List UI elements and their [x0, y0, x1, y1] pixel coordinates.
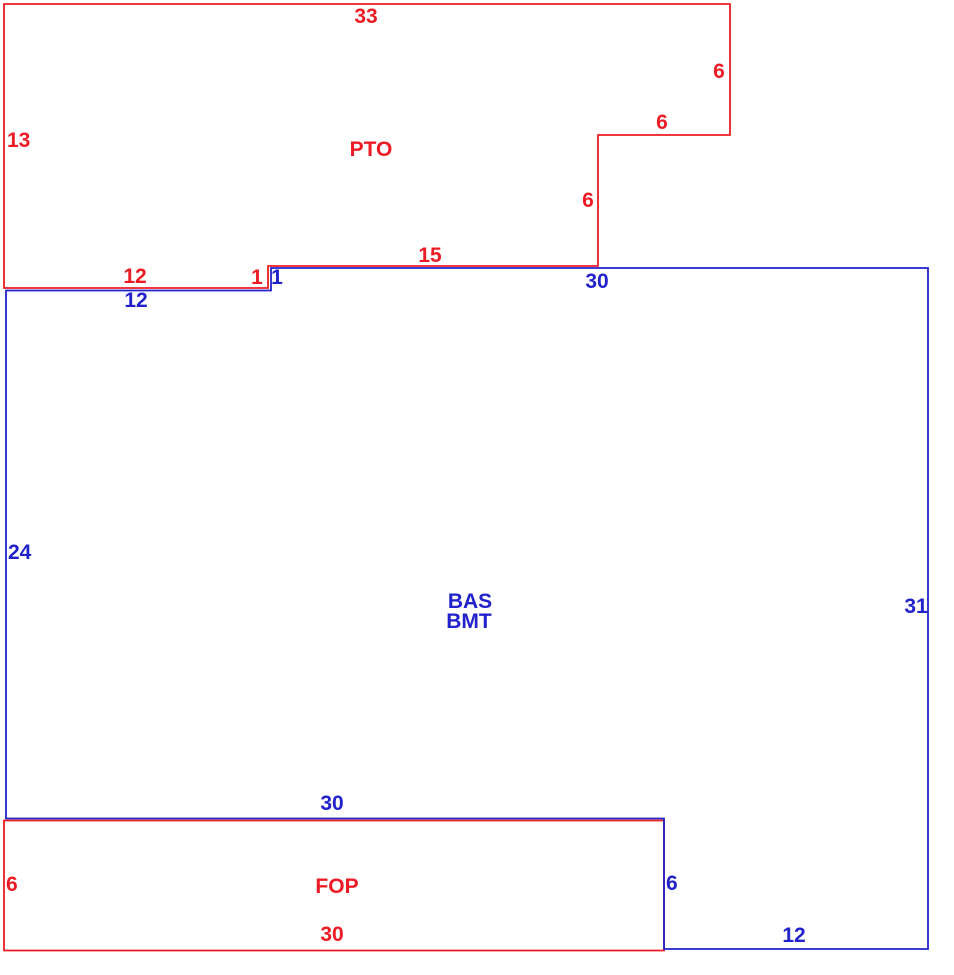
fop-bottom-dim: 30 — [320, 923, 343, 946]
bas-top-left-dim: 12 — [124, 289, 147, 312]
pto-bottom-left-dim: 12 — [123, 265, 146, 288]
pto-step-dim: 1 — [251, 266, 263, 289]
bas-mid-dim: 30 — [320, 792, 343, 815]
bas-bottom-dim: 12 — [782, 924, 805, 947]
bas-left-dim: 24 — [8, 541, 32, 564]
fop-area-label: FOP — [315, 875, 358, 898]
bas-top-dim: 30 — [585, 270, 608, 293]
pto-notch-side-dim: 6 — [582, 189, 594, 212]
sketch-canvas: 33 13 PTO 6 6 6 15 12 1 1 12 30 24 BAS B… — [0, 0, 954, 975]
pto-top-dim: 33 — [354, 5, 377, 28]
pto-bottom-mid-dim: 15 — [418, 244, 442, 267]
sketch-svg: 33 13 PTO 6 6 6 15 12 1 1 12 30 24 BAS B… — [0, 0, 954, 975]
pto-area-label: PTO — [350, 138, 393, 161]
pto-notch-top-dim: 6 — [656, 111, 668, 134]
pto-right-dim: 6 — [713, 60, 725, 83]
bas-right-dim: 31 — [904, 595, 928, 618]
bas-notch-side-dim: 6 — [666, 872, 678, 895]
bas-step-dim: 1 — [271, 266, 283, 289]
pto-left-dim: 13 — [7, 129, 30, 152]
bmt-area-label: BMT — [446, 610, 492, 633]
fop-left-dim: 6 — [6, 873, 18, 896]
